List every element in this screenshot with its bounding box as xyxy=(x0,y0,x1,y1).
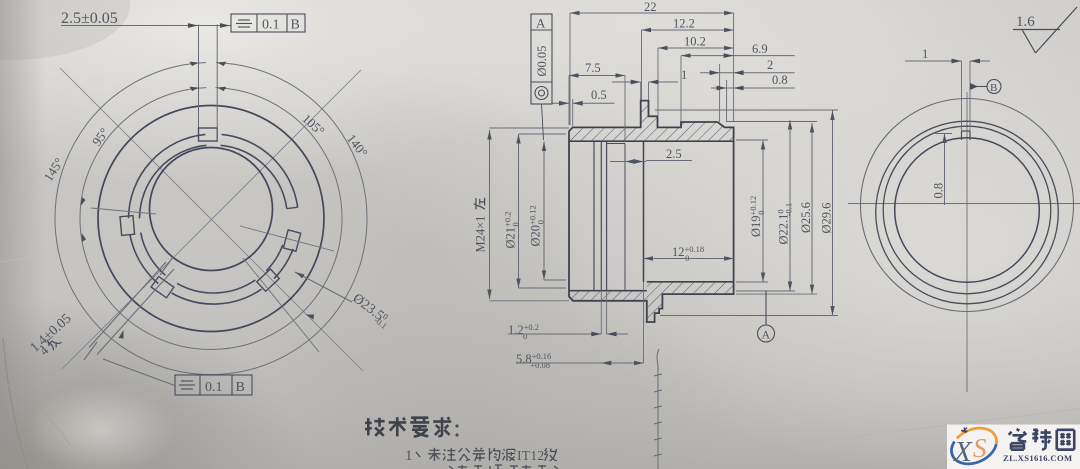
svg-text:X: X xyxy=(953,436,973,468)
svg-text:ZL.XS1616.COM: ZL.XS1616.COM xyxy=(1003,453,1073,463)
svg-text:0.1: 0.1 xyxy=(205,380,223,395)
svg-text:6.9: 6.9 xyxy=(752,42,768,56)
svg-text:1: 1 xyxy=(681,68,687,82)
svg-text:1: 1 xyxy=(922,47,928,61)
svg-text:1: 1 xyxy=(405,448,413,464)
svg-text:22: 22 xyxy=(644,0,657,14)
svg-text:A: A xyxy=(762,328,771,342)
svg-text:2: 2 xyxy=(767,58,773,72)
svg-text:Ø25.6: Ø25.6 xyxy=(799,202,813,233)
svg-text:0.5: 0.5 xyxy=(591,88,607,102)
svg-text:1.6: 1.6 xyxy=(1016,14,1035,30)
svg-text:B: B xyxy=(291,18,300,33)
svg-text:7.5: 7.5 xyxy=(585,61,601,75)
svg-text:0.8: 0.8 xyxy=(932,183,946,199)
svg-text:Ø0.05: Ø0.05 xyxy=(535,46,549,77)
svg-text:12.2: 12.2 xyxy=(673,17,695,31)
svg-text:0.1: 0.1 xyxy=(262,18,280,33)
svg-text:IT12: IT12 xyxy=(517,448,544,463)
svg-text:M24×1: M24×1 xyxy=(474,216,488,253)
svg-text:B: B xyxy=(990,82,997,94)
svg-text:2.5±0.05: 2.5±0.05 xyxy=(61,10,118,27)
svg-text:Ø29.6: Ø29.6 xyxy=(820,203,834,234)
svg-text:A: A xyxy=(536,16,546,31)
svg-text:2.5: 2.5 xyxy=(666,147,682,161)
svg-text:B: B xyxy=(236,380,245,395)
svg-text:0.8: 0.8 xyxy=(772,73,788,87)
svg-text:10.2: 10.2 xyxy=(684,35,706,49)
svg-text:S: S xyxy=(973,433,987,463)
